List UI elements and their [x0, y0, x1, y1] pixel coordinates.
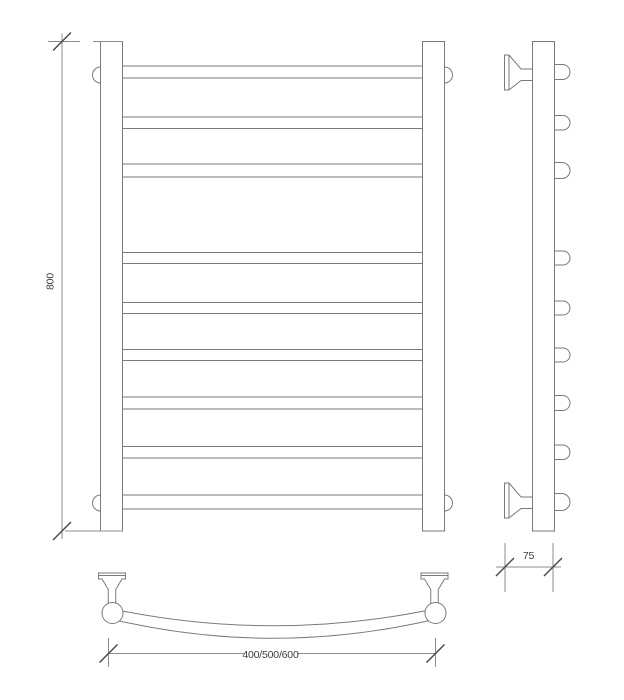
- rung-9: [123, 495, 423, 509]
- bowed-rung-outer-arc: [115, 610, 432, 626]
- left-post-section: [102, 603, 123, 624]
- rung-end-stub-2: [555, 116, 571, 131]
- depth-dimension-label: 75: [523, 550, 535, 562]
- rung-4: [123, 253, 423, 264]
- width-dimension: 400/500/600: [100, 638, 445, 667]
- rung-7: [123, 397, 423, 409]
- width-dimension-label: 400/500/600: [242, 649, 299, 661]
- rung-1: [123, 66, 423, 78]
- left-post: [101, 42, 123, 532]
- top-bracket-left: [99, 573, 126, 604]
- height-dimension-label: 800: [45, 273, 57, 290]
- top-view: [99, 573, 449, 638]
- rung-3: [123, 164, 423, 177]
- rung-end-stub-8: [555, 445, 571, 460]
- right-post: [423, 42, 445, 532]
- rung-end-stub-5: [555, 301, 571, 315]
- rung-2: [123, 117, 423, 129]
- rung-end-stub-1: [555, 65, 571, 80]
- side-stubs: [555, 65, 571, 511]
- front-rungs: [123, 66, 423, 509]
- depth-dimension: 75: [496, 543, 562, 592]
- rung-5: [123, 303, 423, 314]
- side-view: [505, 42, 571, 532]
- towel-rail-drawing: 800 75: [0, 0, 624, 700]
- right-post-section: [425, 603, 446, 624]
- drawing-canvas: 800 75: [0, 0, 624, 700]
- rung-8: [123, 447, 423, 459]
- top-bracket-right: [421, 573, 448, 604]
- bowed-rung-inner-arc: [113, 620, 434, 639]
- rung-end-stub-4: [555, 251, 571, 265]
- rung-end-stub-3: [555, 163, 571, 179]
- front-view: [93, 42, 453, 532]
- rung-end-stub-7: [555, 396, 571, 411]
- rung-end-stub-6: [555, 348, 571, 362]
- rung-6: [123, 350, 423, 361]
- side-post: [533, 42, 555, 532]
- rung-end-stub-9: [555, 494, 571, 511]
